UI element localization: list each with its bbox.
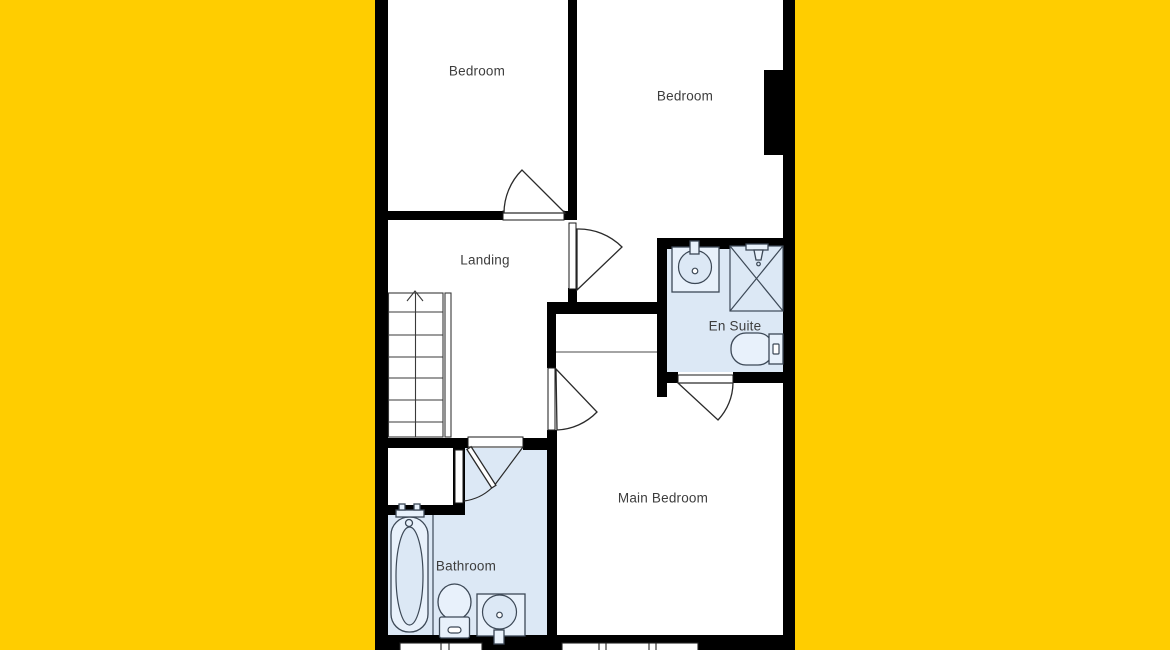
door-frame-bathroom — [468, 437, 523, 447]
room-label-bedroom-right: Bedroom — [657, 89, 713, 104]
stair-railing — [445, 293, 451, 437]
room-label-en-suite: En Suite — [709, 319, 762, 334]
bathroom-toilet — [438, 584, 471, 638]
wall-ensuite-bottom-right — [733, 372, 783, 383]
window-bathroom — [400, 643, 482, 650]
room-label-landing: Landing — [460, 253, 509, 268]
door-frame-en-suite — [678, 375, 733, 383]
en-suite-washbasin — [672, 241, 719, 292]
en-suite-toilet — [731, 333, 783, 365]
chimney-breast — [764, 70, 784, 155]
wall-bedroom-left-bottom — [388, 211, 503, 220]
wall-ensuite-bottom-left — [657, 372, 678, 383]
window-main-bedroom — [562, 643, 698, 650]
en-suite-shower — [730, 244, 783, 311]
bathtub — [391, 504, 428, 632]
door-frame-bedroom-right — [569, 223, 576, 289]
room-label-bedroom-left: Bedroom — [449, 64, 505, 79]
cupboard-door-frame — [455, 450, 463, 503]
wall-landing-main-lower — [547, 430, 557, 650]
staircase — [388, 291, 451, 437]
wall-landing-main-upper — [547, 314, 556, 368]
room-label-main-bedroom: Main Bedroom — [618, 491, 708, 506]
wall-landing-alcove — [547, 302, 660, 314]
floorplan-canvas: Bedroom Bedroom Landing En Suite Main Be… — [0, 0, 1170, 650]
floorplan-drawing — [0, 0, 1170, 650]
wall-bathroom-top-left — [375, 438, 468, 448]
room-label-bathroom: Bathroom — [436, 559, 496, 574]
wall-bedroom-divider — [568, 0, 577, 220]
wall-divider-stub — [568, 288, 577, 304]
shower-head-icon — [746, 244, 768, 250]
door-frame-main-bedroom — [548, 368, 555, 430]
wall-outer-left — [375, 0, 388, 650]
wall-outer-right — [783, 0, 795, 650]
wall-bathroom-top-right — [523, 438, 556, 450]
bathroom-washbasin — [477, 594, 525, 644]
